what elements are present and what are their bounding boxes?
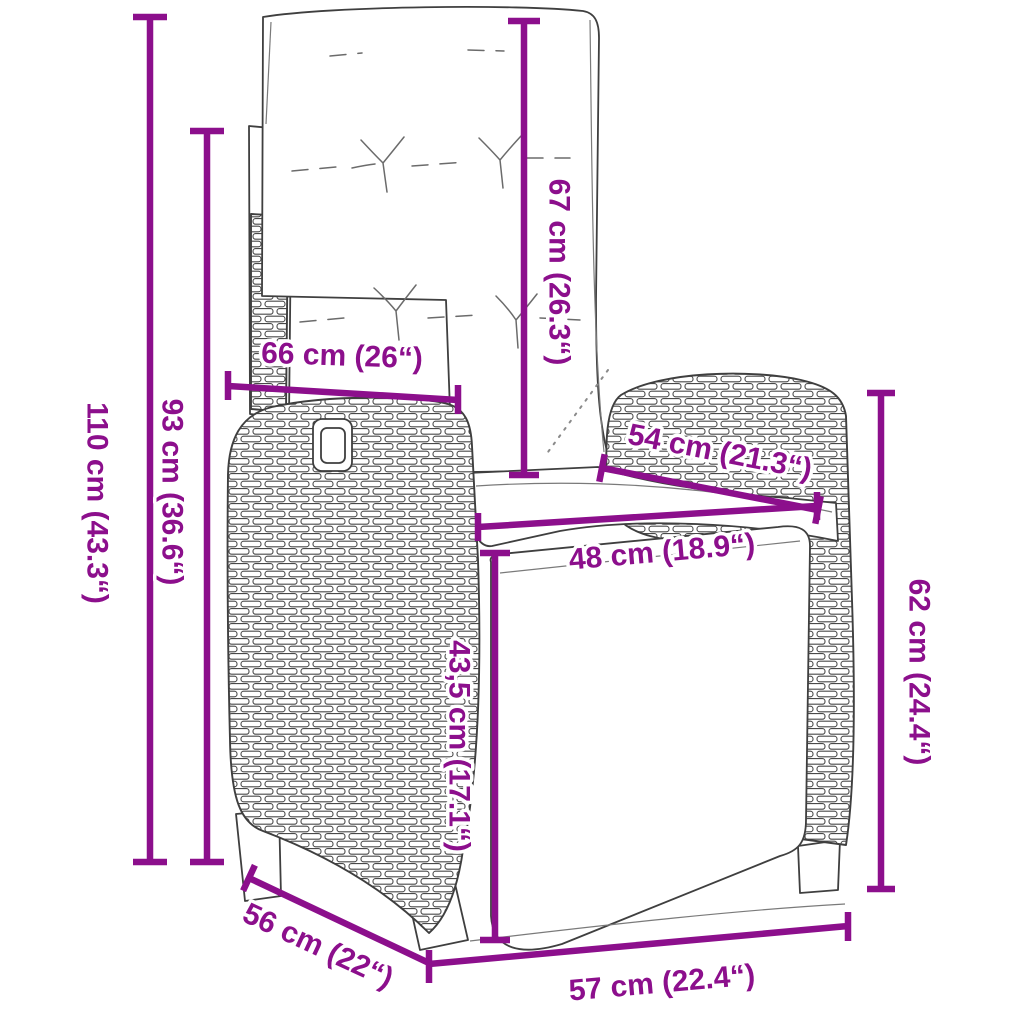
dim-base-width-label: 57 cm (22.4“) xyxy=(568,958,757,1007)
chair-footrest-panel xyxy=(491,526,810,949)
chair-line-art xyxy=(228,7,854,950)
dim-footrest-height-label: 43,5 cm (17.1“) xyxy=(443,640,476,852)
dim-back-cushion-height-label: 67 cm (26.3“) xyxy=(543,179,576,366)
dim-armrest-height-label: 62 cm (24.4“) xyxy=(903,579,936,766)
dim-overall-height: 110 cm (43.3“) xyxy=(81,17,168,862)
dim-backrest-height-label: 93 cm (36.6“) xyxy=(156,399,189,586)
product-dimension-diagram: 110 cm (43.3“) 93 cm (36.6“) 66 cm (26“)… xyxy=(0,0,1024,1024)
dim-backrest-height: 93 cm (36.6“) xyxy=(156,131,225,862)
cup-holder xyxy=(313,419,352,471)
dim-armrest-height: 62 cm (24.4“) xyxy=(867,393,936,889)
recliner-chair-dimension-drawing: 110 cm (43.3“) 93 cm (36.6“) 66 cm (26“)… xyxy=(0,0,1024,1024)
dim-armrest-top-width-label: 66 cm (26“) xyxy=(261,337,424,376)
dim-overall-height-label: 110 cm (43.3“) xyxy=(81,402,114,604)
